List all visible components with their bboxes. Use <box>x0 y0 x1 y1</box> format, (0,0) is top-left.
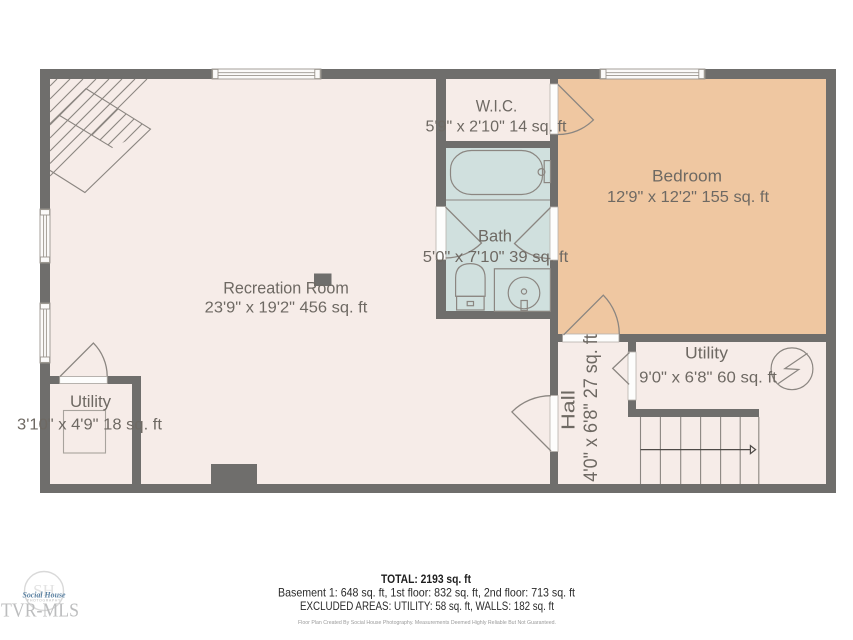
svg-text:4'0" x 6'8" 27 sq. ft: 4'0" x 6'8" 27 sq. ft <box>581 334 602 482</box>
svg-text:TVR-MLS: TVR-MLS <box>1 601 79 622</box>
svg-text:23'9" x 19'2" 456 sq. ft: 23'9" x 19'2" 456 sq. ft <box>205 300 368 317</box>
svg-text:Bedroom: Bedroom <box>652 167 722 186</box>
svg-text:Bath: Bath <box>478 227 512 246</box>
svg-text:Hall: Hall <box>559 390 579 430</box>
svg-text:Recreation Room: Recreation Room <box>223 278 349 297</box>
svg-text:5'9" x 2'10" 14 sq. ft: 5'9" x 2'10" 14 sq. ft <box>426 119 568 136</box>
svg-text:9'0" x 6'8" 60 sq. ft: 9'0" x 6'8" 60 sq. ft <box>639 370 777 387</box>
svg-text:TOTAL: 2193 sq. ft: TOTAL: 2193 sq. ft <box>381 572 471 586</box>
svg-text:5'0" x 7'10" 39 sq. ft: 5'0" x 7'10" 39 sq. ft <box>423 249 569 266</box>
svg-text:W.I.C.: W.I.C. <box>476 97 517 116</box>
svg-text:EXCLUDED AREAS: UTILITY: 58 sq: EXCLUDED AREAS: UTILITY: 58 sq. ft, WALL… <box>300 599 555 613</box>
svg-text:3'10" x 4'9" 18 sq. ft: 3'10" x 4'9" 18 sq. ft <box>17 417 163 434</box>
svg-text:Floor Plan Created By Social H: Floor Plan Created By Social House Photo… <box>298 620 556 626</box>
svg-text:Utility: Utility <box>685 344 729 363</box>
svg-text:12'9" x 12'2" 155 sq. ft: 12'9" x 12'2" 155 sq. ft <box>607 189 770 206</box>
svg-text:Basement 1: 648 sq. ft, 1st fl: Basement 1: 648 sq. ft, 1st floor: 832 s… <box>278 586 576 600</box>
svg-text:Utility: Utility <box>70 392 111 411</box>
